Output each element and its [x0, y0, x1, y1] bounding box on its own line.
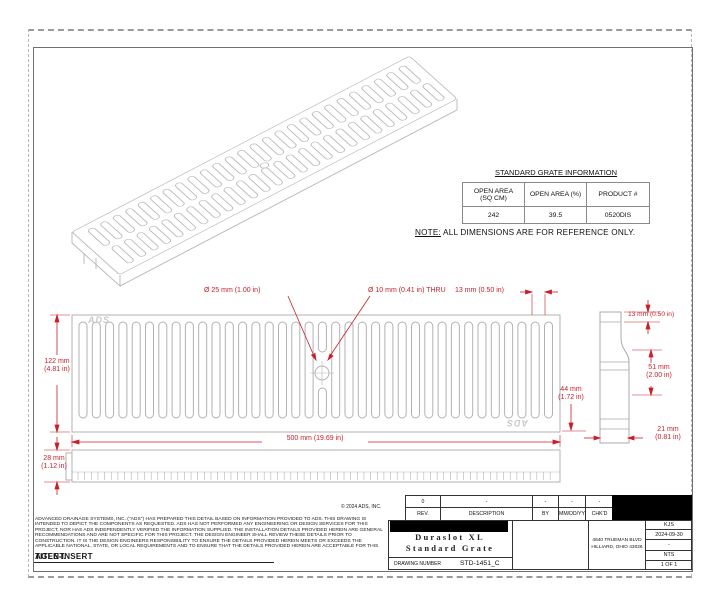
dim-side-top: 13 mm (0.50 in)	[628, 311, 674, 319]
plan-view	[72, 315, 560, 432]
drawing-number-label: DRAWING NUMBER	[394, 561, 441, 567]
rev-header: CHK'D	[586, 508, 613, 520]
drawing-sheet: Ø 25 mm (1.00 in) Ø 10 mm (0.41 in) THRU…	[0, 0, 720, 600]
drawing-number-row: DRAWING NUMBER STD-1451_C	[388, 557, 512, 570]
rev-header: DESCRIPTION	[441, 508, 533, 520]
rev-chkd-value: -	[586, 496, 613, 508]
rev-by-value: -	[533, 496, 559, 508]
meta-column: KJS 2024-09-30 - NTS 1 OF 1	[645, 520, 692, 570]
dim-throat: 44 mm (1.72 in)	[548, 386, 594, 402]
title-insert-placeholder: TITLE-INSERT	[35, 552, 93, 561]
grate-info-table: OPEN AREA (SQ CM) OPEN AREA (%) PRODUCT …	[462, 182, 650, 224]
logo-section: ADS Advanced Drainage Systems, Inc.	[512, 520, 588, 570]
plan-watermark-ads-bottom: ADS	[506, 418, 528, 428]
dim-front-height: 28 mm (1.12 in)	[28, 455, 80, 471]
grate-info-value: 242	[463, 207, 525, 223]
isometric-view	[72, 56, 457, 286]
revision-table: 0 - - - - REV. DESCRIPTION BY MM/DD/YY C…	[405, 495, 614, 521]
meta-checked: -	[646, 540, 692, 550]
company-address: 4640 TRUEMAN BLVD HILLIARD, OHIO 43026	[588, 520, 645, 570]
grate-info-col-header: OPEN AREA (SQ CM)	[463, 183, 525, 207]
rev-header: BY	[533, 508, 559, 520]
dim-slot-pitch: 13 mm (0.50 in)	[455, 287, 504, 295]
grate-info-value: 0520DIS	[587, 207, 649, 223]
meta-drawn-by: KJS	[646, 520, 692, 530]
dim-length: 500 mm (19.69 in)	[265, 435, 365, 443]
meta-sheet: 1 OF 1	[646, 561, 692, 570]
plan-watermark-ads-top: ADS	[88, 315, 110, 325]
dim-hole-dia-10-thru: Ø 10 mm (0.41 in) THRU	[368, 287, 446, 295]
revision-header-row: REV. DESCRIPTION BY MM/DD/YY CHK'D	[406, 508, 613, 520]
dim-hole-dia-25: Ø 25 mm (1.00 in)	[204, 287, 260, 295]
disclaimer-text: ADVANCED DRAINAGE SYSTEMS, INC. ("ADS") …	[35, 517, 393, 549]
note-label: NOTE:	[415, 228, 441, 237]
dim-side-bottom: 21 mm (0.81 in)	[642, 426, 694, 442]
note-text: ALL DIMENSIONS ARE FOR REFERENCE ONLY.	[441, 228, 635, 237]
copyright-text: © 2024 ADS, INC.	[341, 504, 381, 510]
front-view	[66, 450, 560, 482]
grate-info-col-header: OPEN AREA (%)	[525, 183, 587, 207]
rev-value: 0	[406, 496, 441, 508]
meta-scale: NTS	[646, 551, 692, 561]
grate-info-col-header: PRODUCT #	[587, 183, 649, 207]
product-title: Duraslot XL Standard Grate	[388, 532, 512, 553]
drawing-number-value: STD-1451_C	[460, 560, 500, 567]
side-view	[600, 312, 629, 443]
revision-row: 0 - - - -	[406, 496, 613, 508]
title-insert-underline	[34, 562, 274, 563]
rev-header: REV.	[406, 508, 441, 520]
rev-header: MM/DD/YY	[559, 508, 586, 520]
reference-note: NOTE: ALL DIMENSIONS ARE FOR REFERENCE O…	[415, 228, 635, 237]
grate-info-title: STANDARD GRATE INFORMATION	[462, 168, 650, 177]
dim-side-mid: 51 mm (2.00 in)	[634, 364, 684, 380]
rev-description-value: -	[441, 496, 533, 508]
rev-date-value: -	[559, 496, 586, 508]
redacted-project-field	[612, 495, 692, 521]
dim-grate-width: 122 mm (4.81 in)	[30, 358, 84, 374]
grate-info-value: 39.5	[525, 207, 587, 223]
meta-date: 2024-09-30	[646, 530, 692, 540]
